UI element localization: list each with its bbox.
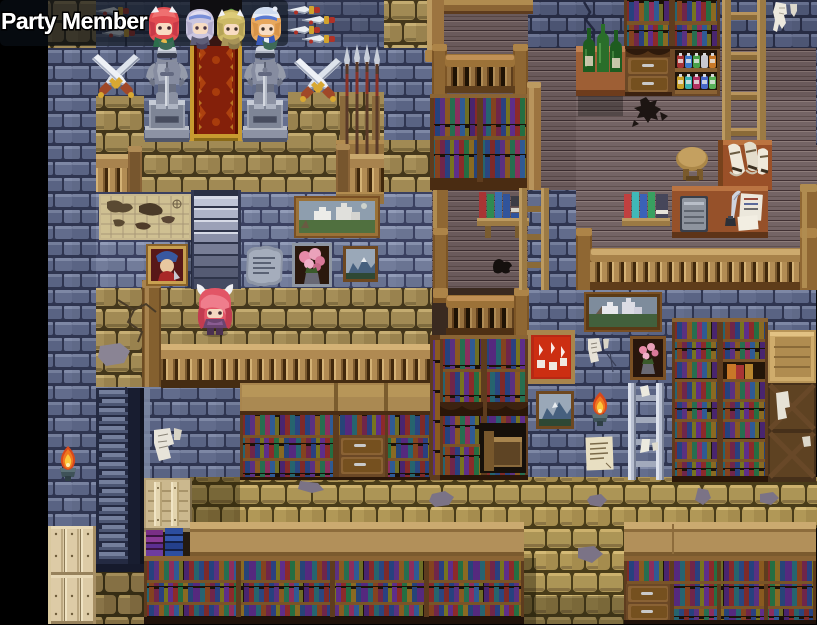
svg-text:Party Member: Party Member xyxy=(1,8,148,34)
